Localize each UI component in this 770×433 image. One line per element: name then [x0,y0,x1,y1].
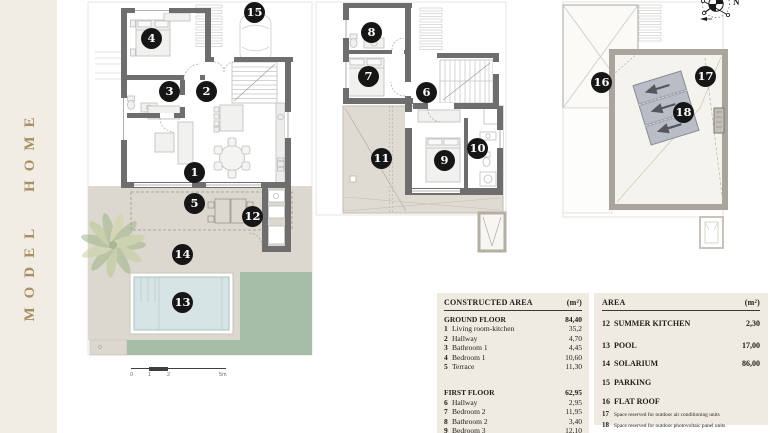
plan-marker-16: 16 [591,72,612,93]
table-row: 16 FLAT ROOF [602,397,760,406]
outdoor-shower-pad [90,340,127,355]
dining-table [214,138,250,178]
table-rule [602,310,760,311]
plan-marker-2: 2 [196,81,217,102]
table-row: 8 Bathroom 2 3,40 [444,417,582,426]
table-title: CONSTRUCTED AREA [444,298,533,307]
dimension-lines [95,52,122,79]
chimney [700,217,723,248]
section-title: GROUND FLOOR [444,315,565,324]
table-row: 6 Hallway 2,95 [444,398,582,407]
scale-tick-2: 2 [167,372,170,378]
section-ground-floor: GROUND FLOOR 84,40 1 Living room-kitchen… [444,315,582,371]
table-row: 4 Bedroom 1 10,60 [444,353,582,362]
roof-plan: N [563,0,740,248]
table-row: 13 POOL 17,00 [602,341,760,350]
staircase-first [440,60,493,103]
compass-north-label: N [733,0,740,7]
table-row: 14 SOLARIUM 86,00 [602,359,760,368]
staircase-ground [232,62,277,103]
table-rule [444,310,582,311]
plan-marker-12: 12 [242,206,263,227]
table-title: AREA [602,298,625,307]
plan-marker-10: 10 [467,138,488,159]
plan-marker-1: 1 [184,162,205,183]
scale-tick-0: 0 [130,372,133,378]
section-first-floor: FIRST FLOOR 62,95 6 Hallway 2,95 7 Bedro… [444,388,582,433]
scale-tick-5m: 5m [219,372,227,378]
compass-icon: N [700,0,740,21]
plan-marker-15: 15 [244,2,265,23]
roof-stair-hatch [639,5,661,41]
plan-marker-11: 11 [371,148,392,169]
table-row: 9 Bedroom 3 12,10 [444,426,582,433]
section-total: 84,40 [565,315,582,324]
table-row: 1 Living room-kitchen 35,2 [444,324,582,333]
table-unit: (m²) [745,298,760,307]
table-row: 5 Terrace 11,30 [444,362,582,371]
scale-bar: 0 1 2 5m [131,366,226,382]
plan-marker-7: 7 [358,66,379,87]
page: { "brand": { "vertical_title": "MODEL HO… [0,0,770,433]
plan-marker-14: 14 [172,244,193,265]
plan-marker-4: 4 [141,28,162,49]
table-row: 12 SUMMER KITCHEN 2,30 [602,319,760,328]
table-note: 17 Space reserved for outdoor air condit… [602,411,760,419]
plan-marker-6: 6 [416,82,437,103]
section-total: 62,95 [565,388,582,397]
balcony [479,213,505,251]
plan-marker-8: 8 [361,22,382,43]
area-table: AREA (m²) 12 SUMMER KITCHEN 2,30 13 POOL… [594,293,768,425]
table-row: 15 PARKING [602,378,760,387]
table-unit: (m²) [567,298,582,307]
scale-bar-segment [149,367,168,371]
table-row: 3 Bathroom 1 4,45 [444,343,582,352]
plan-marker-9: 9 [434,150,455,171]
table-note: 18 Space reserved for outdoor photovolta… [602,422,760,430]
scale-tick-1: 1 [148,372,151,378]
table-row: 7 Bedroom 2 11,95 [444,407,582,416]
section-title: FIRST FLOOR [444,388,565,397]
table-row: 2 Hallway 4,70 [444,334,582,343]
plan-marker-18: 18 [673,102,694,123]
first-floor-plan [316,2,506,251]
ac-unit-vent [714,108,724,133]
plan-marker-13: 13 [172,292,193,313]
plan-marker-3: 3 [159,81,180,102]
plan-marker-5: 5 [184,193,205,214]
constructed-area-table: CONSTRUCTED AREA (m²) GROUND FLOOR 84,40… [437,293,589,433]
scale-bar-line [131,368,226,369]
pergola-slats-first [420,8,442,50]
plan-marker-17: 17 [695,66,716,87]
